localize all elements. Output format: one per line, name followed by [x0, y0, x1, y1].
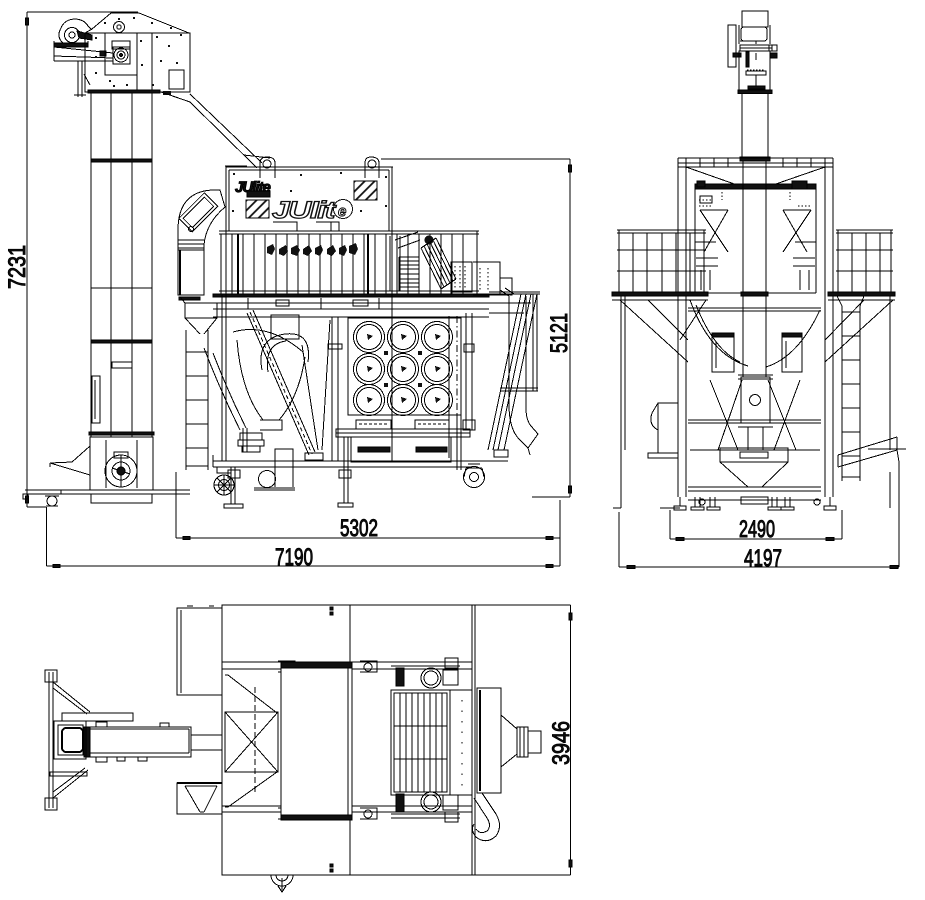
svg-text:5121: 5121: [546, 313, 573, 353]
svg-text:7231: 7231: [4, 245, 31, 289]
svg-text:e: e: [338, 203, 346, 220]
svg-text:7190: 7190: [275, 544, 313, 571]
svg-text:4197: 4197: [744, 545, 782, 572]
svg-text:3946: 3946: [548, 721, 575, 765]
svg-text:JUIit: JUIit: [272, 197, 337, 224]
svg-text:5302: 5302: [340, 515, 378, 542]
svg-text:2490: 2490: [739, 516, 775, 543]
